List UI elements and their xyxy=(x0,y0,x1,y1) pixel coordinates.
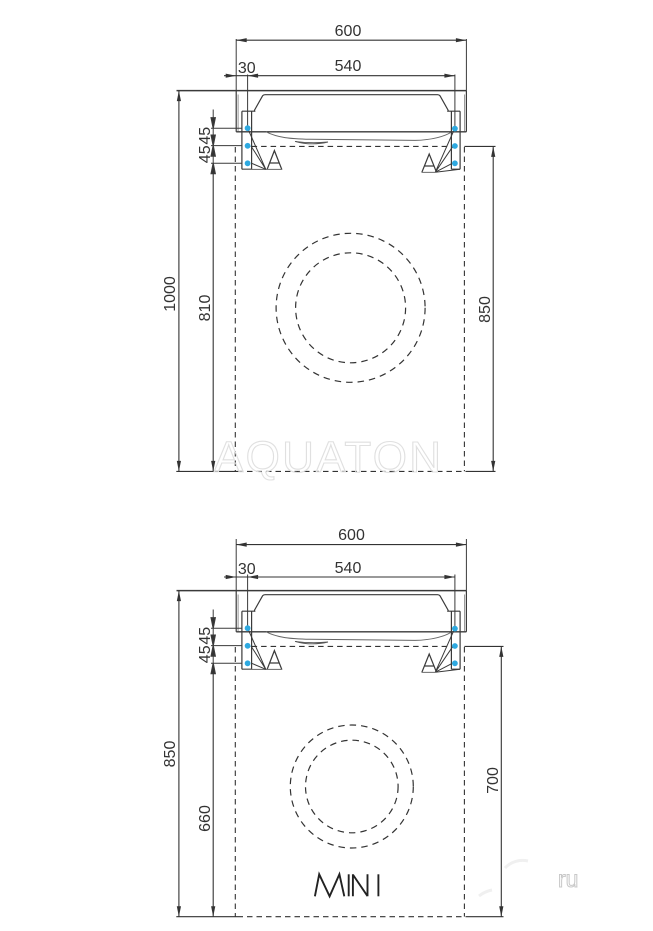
svg-text:600: 600 xyxy=(338,527,365,544)
svg-text:1000: 1000 xyxy=(162,276,179,312)
svg-text:30: 30 xyxy=(238,561,256,578)
svg-text:660: 660 xyxy=(197,805,214,832)
svg-text:30: 30 xyxy=(238,60,256,77)
svg-text:850: 850 xyxy=(162,741,179,768)
svg-text:ru: ru xyxy=(558,866,578,892)
svg-text:850: 850 xyxy=(477,296,494,323)
svg-text:540: 540 xyxy=(335,58,362,75)
svg-text:AQUATON: AQUATON xyxy=(214,433,441,482)
svg-text:540: 540 xyxy=(335,560,362,577)
svg-text:700: 700 xyxy=(485,767,502,794)
svg-text:810: 810 xyxy=(197,295,214,322)
svg-text:600: 600 xyxy=(335,23,362,40)
